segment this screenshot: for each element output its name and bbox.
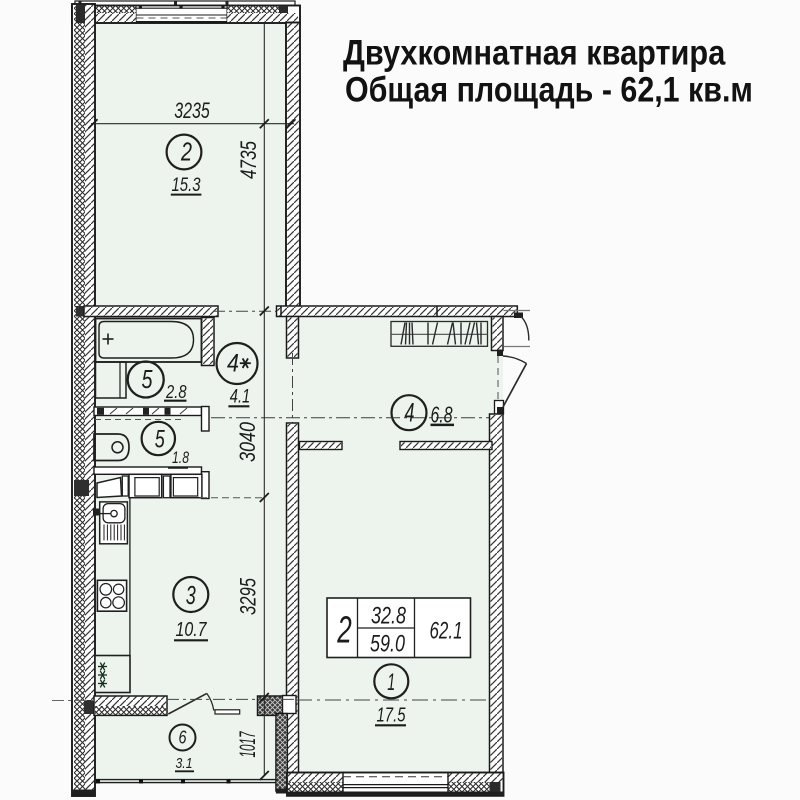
svg-text:4735: 4735: [236, 140, 261, 179]
svg-text:5: 5: [155, 426, 165, 454]
svg-text:6.8: 6.8: [431, 402, 453, 428]
svg-text:17.5: 17.5: [377, 705, 407, 727]
svg-text:3040: 3040: [235, 421, 260, 462]
svg-text:2: 2: [180, 137, 192, 167]
svg-text:3295: 3295: [236, 577, 261, 615]
svg-text:1.8: 1.8: [172, 448, 189, 467]
svg-text:4.1: 4.1: [230, 386, 251, 408]
svg-text:15.3: 15.3: [172, 175, 201, 196]
svg-text:4: 4: [405, 398, 415, 428]
svg-text:3235: 3235: [174, 98, 210, 123]
svg-text:3: 3: [186, 580, 196, 610]
svg-text:10.7: 10.7: [176, 619, 208, 641]
svg-text:2: 2: [337, 610, 352, 652]
svg-text:4: 4: [227, 350, 239, 378]
svg-text:2.8: 2.8: [165, 381, 187, 402]
svg-text:1: 1: [387, 669, 395, 696]
svg-text:1017: 1017: [235, 731, 260, 757]
svg-text:3.1: 3.1: [176, 756, 193, 772]
svg-text:5: 5: [142, 364, 153, 394]
svg-text:Двухкомнатная квартира: Двухкомнатная квартира: [343, 33, 726, 73]
svg-text:32.8: 32.8: [371, 603, 406, 630]
svg-text:62.1: 62.1: [430, 618, 463, 645]
svg-text:59.0: 59.0: [370, 630, 405, 657]
svg-text:6: 6: [179, 728, 188, 748]
svg-text:Общая площадь - 62,1 кв.м: Общая площадь - 62,1 кв.м: [345, 70, 753, 110]
